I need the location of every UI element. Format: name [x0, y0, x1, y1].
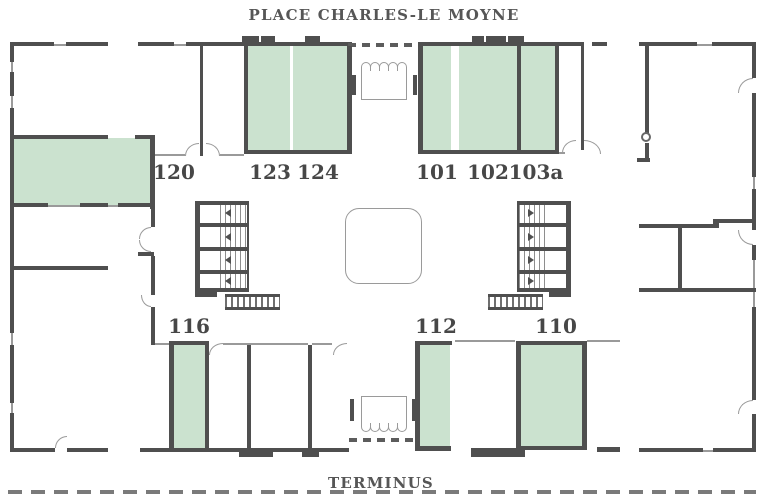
wall	[319, 448, 349, 452]
room-label-123: 123	[249, 160, 291, 184]
door-arc	[206, 143, 220, 156]
room-101-area[interactable]	[423, 46, 451, 152]
wall	[516, 341, 587, 345]
room-label-120: 120	[153, 160, 195, 184]
room-label-116: 116	[168, 314, 210, 338]
room-102-area[interactable]	[459, 46, 517, 152]
wall	[752, 93, 756, 177]
wall	[151, 256, 155, 295]
wall	[12, 203, 48, 207]
dashed-wall	[348, 43, 414, 47]
wall	[195, 292, 217, 297]
room-123-area[interactable]	[248, 46, 290, 152]
window-line	[11, 62, 13, 72]
wall	[67, 448, 108, 452]
wall	[752, 189, 756, 230]
wall	[645, 46, 649, 133]
wall	[247, 345, 251, 448]
wall	[712, 42, 756, 46]
door-arc	[55, 436, 67, 448]
stair-direction-icon	[221, 233, 231, 241]
wall	[12, 135, 108, 139]
stair-landing	[200, 270, 247, 274]
room-116-area[interactable]	[174, 345, 205, 448]
thin-wall	[220, 154, 244, 156]
room-label-112: 112	[415, 314, 457, 338]
stair-direction-icon	[528, 209, 538, 217]
door-arc	[139, 240, 151, 252]
thin-wall	[312, 343, 332, 345]
door-arc	[333, 343, 347, 355]
stair-direction-icon	[528, 277, 538, 285]
room-124-area[interactable]	[293, 46, 347, 152]
wall	[66, 42, 108, 46]
stair-landing	[200, 223, 247, 227]
wall	[10, 42, 14, 62]
door-arc	[738, 78, 753, 93]
room-label-124: 124	[297, 160, 339, 184]
wall	[140, 448, 239, 452]
stairwell-right	[517, 201, 571, 292]
wall	[415, 343, 420, 448]
window-line	[108, 205, 118, 207]
door-arc	[738, 400, 753, 414]
wall	[549, 292, 571, 297]
window-line	[11, 403, 13, 413]
wall	[151, 307, 155, 345]
room-103a-area[interactable]	[521, 46, 555, 152]
wall	[557, 42, 582, 46]
wall	[639, 448, 703, 452]
turnstile-gate-icon	[397, 62, 407, 71]
door-pivot-circle	[641, 132, 651, 142]
wall	[752, 307, 756, 400]
escalator-left	[225, 294, 280, 310]
thin-wall	[455, 340, 515, 342]
turnstile-gate-icon	[397, 423, 407, 432]
stair-direction-icon	[221, 277, 231, 285]
wall	[308, 345, 312, 448]
wall	[597, 447, 620, 452]
wall	[347, 46, 352, 154]
wall	[713, 448, 756, 452]
wall	[205, 345, 209, 448]
wall	[555, 46, 559, 154]
turnstile-bottom	[361, 396, 407, 424]
wall	[415, 446, 451, 451]
column-footing	[305, 36, 320, 44]
room-120-area[interactable]	[12, 138, 151, 205]
column-footing	[242, 36, 259, 44]
door-arc	[738, 230, 753, 245]
thin-wall	[155, 343, 169, 345]
window-line	[753, 260, 755, 307]
wall	[10, 72, 14, 96]
gate-jamb	[352, 75, 356, 95]
window-line	[54, 44, 66, 46]
thin-wall	[223, 343, 308, 345]
wall	[717, 219, 756, 223]
wall	[138, 42, 174, 46]
door-arc	[209, 343, 223, 355]
wall	[10, 413, 14, 452]
column-footing	[486, 36, 506, 44]
wall	[10, 266, 108, 270]
wall	[516, 343, 521, 450]
wall	[80, 203, 108, 207]
atrium-opening	[345, 208, 422, 284]
wall	[581, 42, 584, 150]
column-footing	[302, 448, 319, 457]
wall	[10, 207, 14, 333]
wall	[244, 150, 352, 154]
wall	[752, 42, 756, 78]
room-label-102: 102	[467, 160, 509, 184]
wall	[200, 42, 203, 156]
window-line	[48, 205, 80, 207]
thin-wall	[587, 340, 620, 342]
thin-wall	[155, 154, 185, 156]
wall	[169, 341, 209, 345]
wall	[517, 46, 521, 152]
door-arc	[562, 140, 576, 153]
wall	[10, 448, 55, 452]
wall	[592, 42, 607, 46]
gate-jamb	[413, 75, 417, 95]
escalator-right	[488, 294, 543, 310]
door-arc	[141, 295, 151, 307]
wall	[418, 46, 423, 154]
room-label-101: 101	[416, 160, 458, 184]
wall	[637, 158, 650, 162]
stairwell-left	[195, 201, 249, 292]
column-footing	[508, 36, 524, 44]
wall	[169, 343, 174, 450]
wall	[516, 446, 587, 450]
window-line	[11, 96, 13, 108]
dashed-wall	[349, 438, 417, 442]
floor-plan: 120 123 124 101 102 103a 116 112 110 PLA…	[0, 0, 768, 495]
window-line	[697, 44, 712, 46]
column-footing	[239, 448, 273, 457]
room-112-area[interactable]	[420, 345, 450, 448]
stair-direction-icon	[528, 233, 538, 241]
title-place-charles-le-moyne: PLACE CHARLES-LE MOYNE	[249, 6, 520, 24]
wall	[639, 288, 756, 292]
stair-direction-icon	[528, 256, 538, 264]
wall	[645, 143, 649, 159]
stair-direction-icon	[221, 209, 231, 217]
room-label-110: 110	[535, 314, 577, 338]
wall	[151, 209, 155, 227]
stair-direction-icon	[221, 256, 231, 264]
window-line	[703, 450, 713, 452]
wall	[582, 343, 587, 450]
wall	[203, 42, 244, 46]
wall	[273, 448, 302, 452]
wall	[752, 245, 756, 260]
column-footing	[261, 36, 275, 44]
wall	[10, 345, 14, 403]
wall	[678, 228, 682, 290]
door-arc	[139, 227, 151, 239]
turnstile-top	[361, 70, 407, 100]
wall	[752, 414, 756, 452]
door-arc	[185, 143, 199, 156]
room-110-area[interactable]	[521, 345, 582, 448]
window-line	[753, 177, 755, 189]
wall	[244, 46, 248, 154]
wall	[10, 42, 54, 46]
window-line	[174, 44, 186, 46]
wall	[418, 150, 559, 154]
stair-landing	[519, 223, 566, 227]
wall	[415, 341, 452, 345]
wall	[10, 108, 14, 207]
title-terminus: TERMINUS	[328, 474, 434, 492]
stair-landing	[200, 247, 247, 251]
stair-landing	[519, 270, 566, 274]
column-footing	[472, 36, 484, 44]
wall	[118, 203, 151, 207]
window-line	[11, 333, 13, 345]
gate-jamb	[350, 399, 354, 421]
door-arc	[584, 140, 601, 154]
room-label-103a: 103a	[509, 160, 564, 184]
stair-landing	[519, 247, 566, 251]
